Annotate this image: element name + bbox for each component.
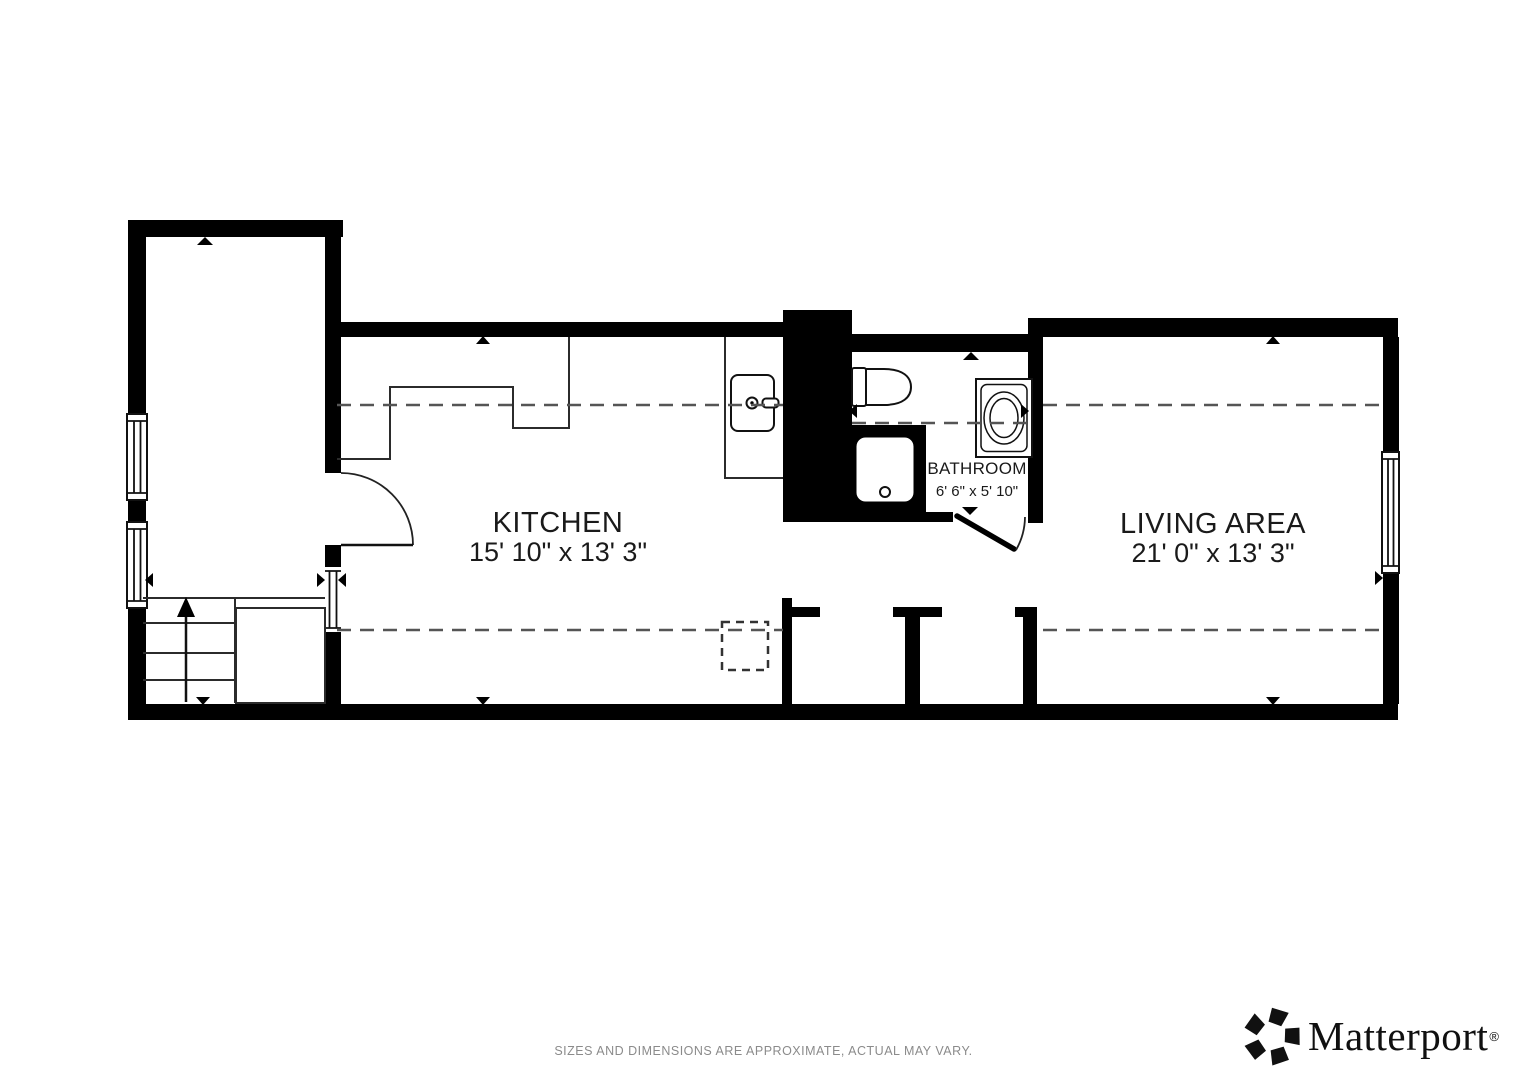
wall-bathroom-top — [852, 334, 1028, 352]
kitchen-counter — [337, 337, 569, 459]
wall-center-mass — [783, 310, 852, 522]
under-stair-closet — [236, 608, 325, 703]
wall-stub — [792, 607, 820, 617]
wall-living-top — [1028, 318, 1398, 337]
window-interior-pass — [325, 567, 341, 632]
wall-interior — [325, 237, 341, 473]
marker-down — [196, 697, 210, 705]
marker-up — [963, 352, 979, 360]
kitchen-fixtures — [337, 337, 783, 478]
matterport-logo-icon — [1243, 1006, 1301, 1066]
stairs-up-arrow-head — [177, 597, 195, 617]
marker-up — [1266, 336, 1280, 344]
wall-bottom — [128, 704, 1398, 720]
bathroom-dimensions: 6' 6" x 5' 10" — [936, 483, 1018, 500]
marker-down — [962, 507, 978, 515]
wall-stub — [782, 598, 792, 704]
wall-stub — [905, 615, 920, 704]
kitchen-label: KITCHEN — [493, 507, 624, 539]
shower-icon — [844, 425, 926, 514]
washer-icon — [976, 379, 1032, 457]
window-left-2 — [127, 522, 147, 608]
staircase — [143, 597, 325, 703]
window-left-1 — [127, 414, 147, 500]
marker-down — [1266, 697, 1280, 705]
floor-plan: KITCHEN 15' 10" x 13' 3" LIVING AREA 21'… — [0, 0, 1527, 1080]
marker-up — [476, 336, 490, 344]
living-area-label: LIVING AREA — [1120, 508, 1306, 540]
wall — [128, 608, 146, 720]
kitchen-dimensions: 15' 10" x 13' 3" — [469, 537, 647, 567]
matterport-wordmark: Matterport — [1308, 1012, 1488, 1060]
wall — [128, 220, 343, 237]
registered-mark: ® — [1489, 1029, 1499, 1044]
toilet-icon — [852, 368, 911, 406]
wall-kitchen-top — [337, 322, 790, 337]
bathroom-door — [957, 516, 1025, 550]
marker-up — [197, 237, 213, 245]
window-right — [1382, 452, 1399, 573]
bathroom-label: BATHROOM — [927, 459, 1026, 478]
wall-interior — [325, 632, 341, 704]
walls — [128, 220, 1399, 720]
living-area-dimensions: 21' 0" x 13' 3" — [1131, 538, 1294, 568]
wall-interior — [325, 545, 341, 567]
marker-down — [476, 697, 490, 705]
marker-right — [317, 573, 325, 587]
matterport-logo: Matterport® — [1243, 1006, 1499, 1066]
wall-stub — [1023, 615, 1037, 704]
kitchen-door — [341, 473, 413, 545]
wall-right-upper — [1383, 337, 1399, 452]
wall-right-lower — [1383, 573, 1399, 704]
wall — [128, 237, 146, 414]
wall — [128, 500, 146, 522]
